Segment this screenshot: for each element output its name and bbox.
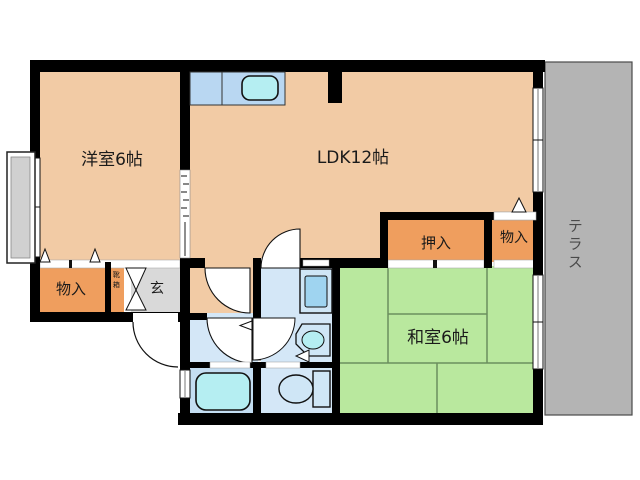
storage-right-door-track	[494, 212, 536, 220]
toilet-door	[266, 362, 300, 368]
entrance-label: 玄	[150, 282, 164, 297]
terrace-label: テラス	[566, 218, 582, 272]
kitchen-counter	[190, 72, 285, 105]
oshiire-label: 押入	[421, 236, 451, 252]
shoe-cabinet-label: 靴箱	[112, 271, 119, 291]
bathroom-door	[210, 362, 250, 368]
floor-plan-drawing	[0, 0, 640, 480]
washing-machine	[300, 269, 332, 313]
partition-sliding-door	[180, 170, 190, 258]
storage-right-label: 物入	[500, 231, 528, 246]
kitchen-sink	[242, 76, 278, 100]
bathtub	[196, 373, 250, 410]
storage-left-label: 物入	[56, 282, 86, 298]
front-door-threshold	[133, 313, 178, 322]
western-room-label: 洋室6帖	[81, 152, 143, 170]
japanese-room-label: 和室6帖	[407, 330, 469, 348]
front-door-swing	[133, 322, 178, 367]
balcony	[7, 152, 35, 263]
floor-plan: 洋室6帖 LDK12帖 和室6帖 押入 物入 物入 玄 テラス 靴箱	[0, 0, 640, 480]
terrace-area	[545, 62, 632, 415]
ldk-label: LDK12帖	[317, 150, 389, 168]
